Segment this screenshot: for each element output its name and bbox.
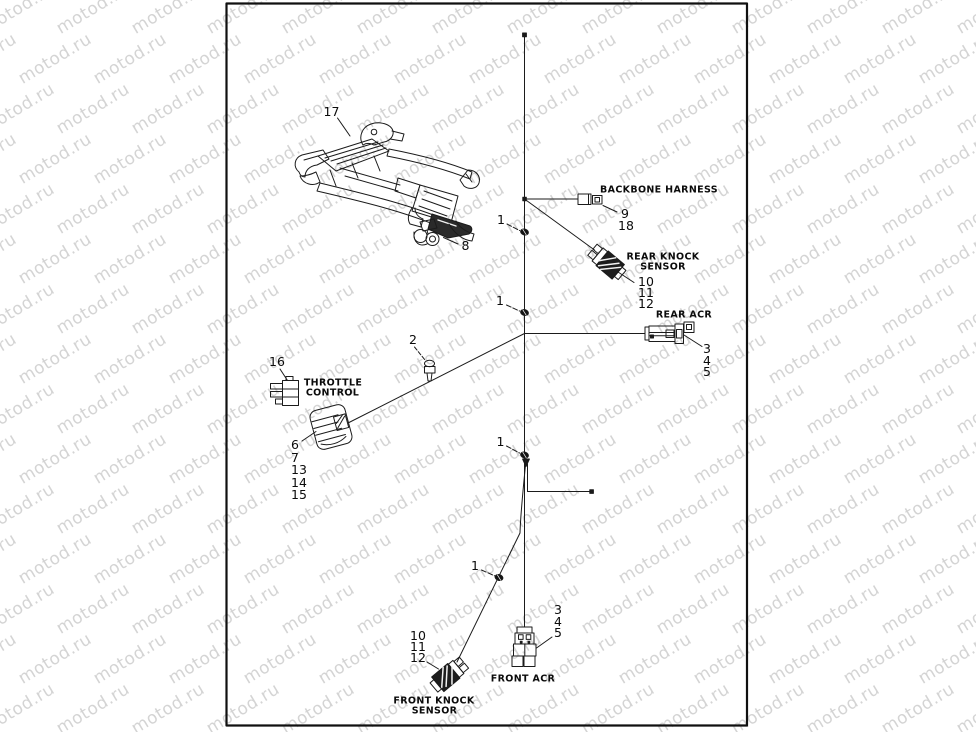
callout-1: 1 xyxy=(471,560,479,573)
label-front-acr: FRONT ACR xyxy=(491,674,555,684)
callout-18: 18 xyxy=(618,219,634,232)
callout-8: 8 xyxy=(462,240,470,253)
callout-17: 17 xyxy=(324,105,340,118)
callout-5: 5 xyxy=(703,365,711,378)
callout-5: 5 xyxy=(554,627,562,640)
label-backbone-harness: BACKBONE HARNESS xyxy=(600,185,718,195)
label-throttle-control: CONTROL xyxy=(306,388,359,398)
label-rear-acr: REAR ACR xyxy=(656,310,712,320)
callout-16: 16 xyxy=(269,356,285,369)
label-rear-knock-sensor: SENSOR xyxy=(640,262,686,272)
callout-1: 1 xyxy=(497,436,505,449)
callout-12: 12 xyxy=(638,298,654,311)
callout-1: 1 xyxy=(496,295,504,308)
callout-12: 12 xyxy=(410,652,426,665)
callout-1: 1 xyxy=(497,214,505,227)
callout-2: 2 xyxy=(409,334,417,347)
callout-label-layer: 17 8 1 1 1 1 2 16 9 18 10 11 12 3 4 5 6 … xyxy=(0,0,976,732)
parts-diagram-page: motod.rumotod.rumotod.rumotod.rumotod.ru… xyxy=(0,0,976,732)
callout-15: 15 xyxy=(291,489,307,502)
label-front-knock-sensor: SENSOR xyxy=(412,706,458,716)
